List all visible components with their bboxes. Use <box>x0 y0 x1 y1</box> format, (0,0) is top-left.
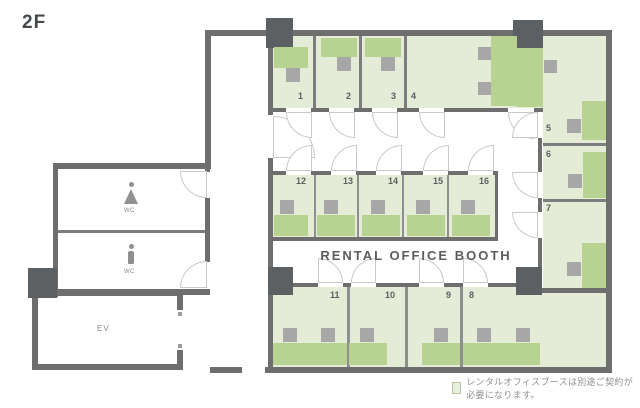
desk <box>422 343 460 365</box>
desk <box>501 343 540 365</box>
wall <box>32 364 183 370</box>
booth-label-6: 6 <box>546 150 551 159</box>
wall <box>268 108 286 112</box>
booth-label-11: 11 <box>330 291 340 300</box>
wall <box>314 175 316 237</box>
pillar <box>268 267 293 295</box>
wall <box>401 171 423 175</box>
wall <box>606 30 612 373</box>
chair <box>478 47 491 60</box>
wall <box>177 350 183 370</box>
pillar <box>28 268 57 298</box>
booth-label-16: 16 <box>479 177 489 186</box>
door-arc <box>376 145 402 171</box>
desk <box>491 36 517 106</box>
chair <box>371 200 385 214</box>
desk <box>349 343 387 365</box>
wall <box>32 296 38 370</box>
chair <box>568 174 582 188</box>
booth-label-3: 3 <box>391 92 396 101</box>
desk <box>583 152 606 198</box>
desk <box>365 38 401 57</box>
door-arc <box>423 145 449 171</box>
rental-office-booth-title: RENTAL OFFICE BOOTH <box>300 248 532 263</box>
desk <box>582 101 606 140</box>
pillar <box>513 20 543 48</box>
wall <box>543 143 606 146</box>
floor-plan: 2F <box>0 0 640 408</box>
chair <box>461 200 475 214</box>
wall <box>359 36 362 108</box>
wall <box>268 171 286 175</box>
desk <box>274 47 308 68</box>
chair <box>280 200 294 214</box>
chair <box>283 328 297 342</box>
wall <box>311 108 329 112</box>
chair <box>567 119 581 133</box>
wall <box>543 199 606 202</box>
wall <box>205 30 211 166</box>
chair <box>434 328 448 342</box>
wall <box>448 171 468 175</box>
wall <box>356 171 376 175</box>
wall <box>495 171 498 241</box>
booth-label-10: 10 <box>385 291 395 300</box>
door-arc <box>512 212 538 238</box>
booth-label-15: 15 <box>433 177 443 186</box>
wall <box>205 198 210 262</box>
door-arc <box>419 112 445 138</box>
desk <box>517 48 543 107</box>
chair <box>516 328 530 342</box>
wall <box>53 163 211 169</box>
door-arc <box>329 112 355 138</box>
booth-label-12: 12 <box>296 177 306 186</box>
wall <box>58 230 205 233</box>
wall <box>376 283 419 287</box>
legend-swatch <box>452 382 461 394</box>
booth-label-8: 8 <box>469 291 474 300</box>
desk <box>362 215 400 236</box>
desk <box>452 215 490 236</box>
booth-label-1: 1 <box>298 92 303 101</box>
desk <box>317 215 355 236</box>
wall <box>57 290 183 296</box>
chair <box>477 328 491 342</box>
wall <box>402 175 404 237</box>
door-arc <box>512 172 538 198</box>
pillar <box>516 267 542 295</box>
door-arc <box>468 145 494 171</box>
wall <box>538 138 542 172</box>
booth-label-7: 7 <box>546 204 551 213</box>
elevator-label: EV <box>97 324 110 333</box>
booth-label-5: 5 <box>546 124 551 133</box>
elevator-door-mark <box>178 312 182 316</box>
desk <box>274 215 308 236</box>
wall <box>354 108 372 112</box>
door-arc <box>180 261 207 288</box>
booth-label-4: 4 <box>411 92 416 101</box>
chair <box>544 60 557 73</box>
booth-8-extension <box>540 293 606 367</box>
wall <box>397 108 419 112</box>
wall <box>404 36 407 108</box>
chair <box>324 200 338 214</box>
desk <box>407 215 445 236</box>
booth-label-13: 13 <box>343 177 353 186</box>
chair <box>381 57 395 71</box>
chair <box>286 68 300 82</box>
wall <box>444 108 508 112</box>
wall <box>538 108 542 112</box>
chair <box>416 200 430 214</box>
wall <box>357 175 359 237</box>
floor-label: 2F <box>22 12 46 34</box>
door-arc <box>331 145 357 171</box>
legend: レンタルオフィスブースは別途ご契約が必要になります。 <box>452 375 640 401</box>
door-arc <box>180 171 207 198</box>
man-icon <box>128 251 134 264</box>
wall <box>313 36 316 108</box>
wall <box>447 175 449 237</box>
booth-label-9: 9 <box>446 291 451 300</box>
woman-icon <box>124 189 138 204</box>
wall <box>405 287 408 367</box>
chair <box>478 82 491 95</box>
wall <box>538 198 542 212</box>
elevator-door-mark <box>178 344 182 348</box>
wall <box>268 158 273 367</box>
desk <box>273 343 310 365</box>
pillar <box>266 18 293 48</box>
wall <box>268 237 498 241</box>
desk <box>582 243 606 288</box>
chair <box>337 57 351 71</box>
door-arc <box>372 112 398 138</box>
wc-label: WC <box>124 269 135 275</box>
wc-label: WC <box>124 208 135 214</box>
desk <box>321 38 357 57</box>
wall <box>265 367 612 373</box>
woman-icon <box>129 182 134 187</box>
wall <box>542 288 606 293</box>
man-icon <box>129 244 134 249</box>
chair <box>321 328 335 342</box>
legend-note: レンタルオフィスブースは別途ご契約が必要になります。 <box>466 375 640 401</box>
wall <box>210 367 242 373</box>
desk <box>310 343 347 365</box>
wall <box>177 296 183 310</box>
desk <box>463 343 501 365</box>
booth-label-14: 14 <box>388 177 398 186</box>
booth-label-2: 2 <box>346 92 351 101</box>
chair <box>567 262 581 276</box>
chair <box>360 328 374 342</box>
